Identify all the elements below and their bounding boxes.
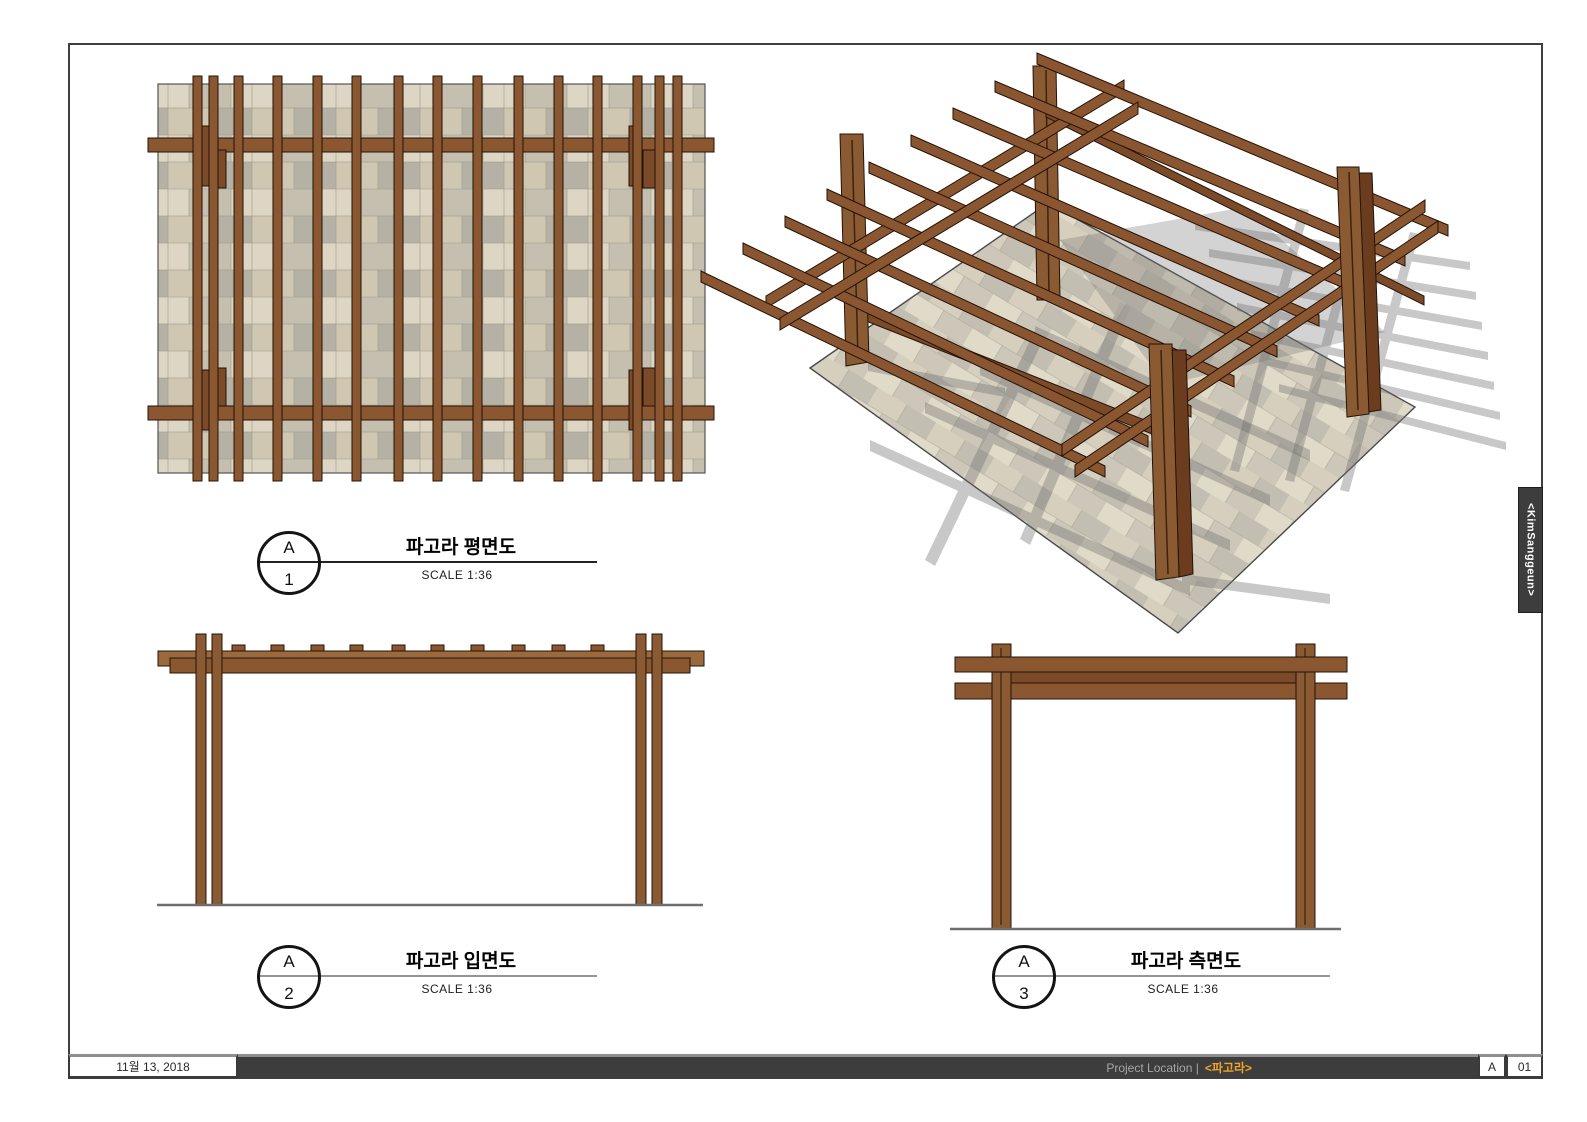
sheet-number: 01	[1518, 1060, 1531, 1074]
side-upper-beam	[955, 657, 1347, 672]
side-view-drawing	[940, 630, 1360, 940]
elevation-label-number: 2	[284, 985, 293, 1002]
side-label-letter: A	[1018, 953, 1029, 970]
author-side-tab-label: <KimSanggeun>	[1525, 503, 1537, 596]
plan-label-letter: A	[283, 539, 294, 556]
plan-view-title: 파고라 평면도	[406, 532, 516, 559]
project-location: Project Location | <파고라>	[1106, 1057, 1252, 1078]
elevation-view-title: 파고라 입면도	[406, 946, 516, 973]
titleblock-bar: Project Location | <파고라>	[238, 1054, 1478, 1078]
drawing-sheet-canvas: A 1 파고라 평면도 SCALE 1:36 A 2 파고라 입면도 SCALE…	[0, 0, 1587, 1122]
elevation-label-letter: A	[283, 953, 294, 970]
sheet-number-cell: 01	[1506, 1054, 1543, 1078]
date-text: 11월 13, 2018	[116, 1058, 190, 1075]
titleblock-date: 11월 13, 2018	[68, 1054, 238, 1078]
plan-view-drawing	[145, 68, 725, 488]
pergola-post-front	[1149, 344, 1193, 580]
side-label-number: 3	[1019, 985, 1028, 1002]
sheet-letter-cell: A	[1478, 1054, 1506, 1078]
plan-label-number: 1	[284, 571, 293, 588]
plan-label-circle: A 1	[257, 531, 321, 595]
perspective-view-drawing	[680, 50, 1530, 650]
project-name: <파고라>	[1205, 1059, 1252, 1076]
elevation-view-drawing	[145, 625, 720, 920]
plan-view-scale: SCALE 1:36	[421, 568, 492, 582]
side-view-scale: SCALE 1:36	[1147, 982, 1218, 996]
sheet-letter: A	[1488, 1060, 1496, 1074]
side-beams	[955, 671, 1347, 699]
elevation-beams	[158, 651, 704, 673]
elevation-label-circle: A 2	[257, 945, 321, 1009]
side-label-circle: A 3	[992, 945, 1056, 1009]
side-view-title: 파고라 측면도	[1131, 946, 1241, 973]
elevation-posts	[196, 634, 662, 905]
author-side-tab[interactable]: <KimSanggeun>	[1518, 487, 1543, 613]
elevation-view-scale: SCALE 1:36	[421, 982, 492, 996]
project-location-label: Project Location |	[1106, 1061, 1199, 1075]
